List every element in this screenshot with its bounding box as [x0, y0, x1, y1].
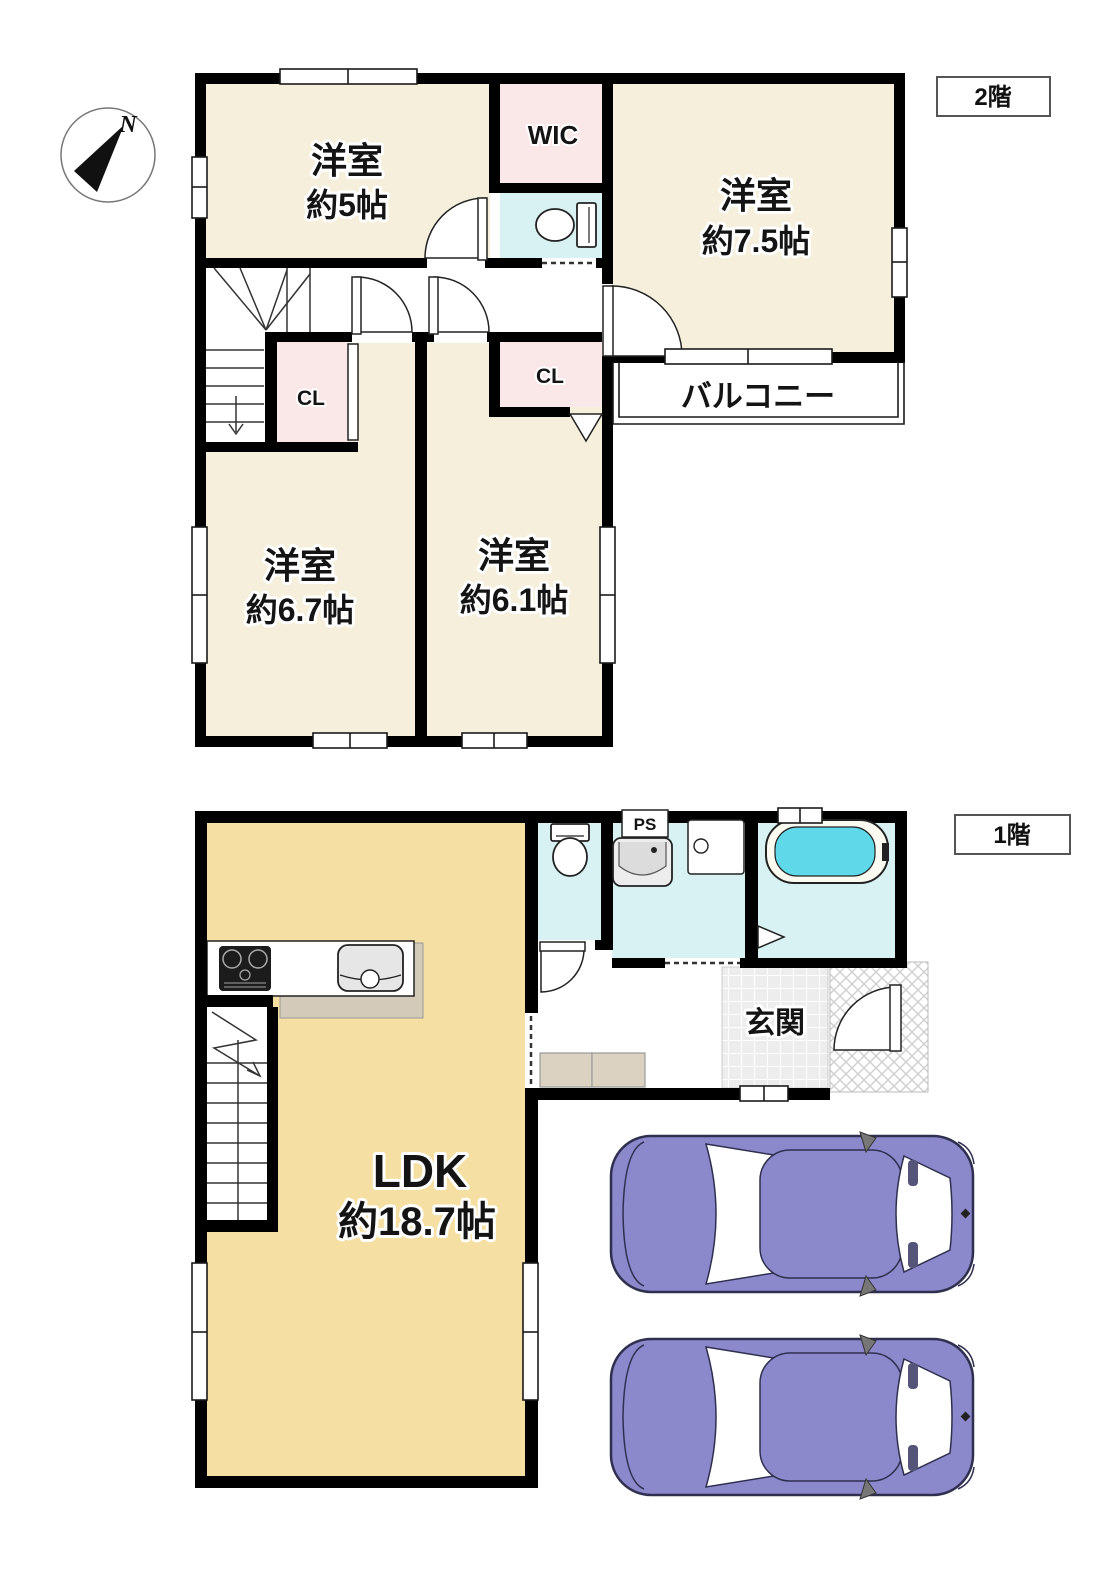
bathtub-icon: [766, 820, 889, 883]
shoe-cabinet: [540, 1053, 645, 1087]
stairs-2f-floor: [205, 268, 265, 443]
bedroom-7-5-label: 洋室: [720, 175, 792, 216]
closet-left-label: CL: [297, 387, 325, 410]
toilet-1f-fixture: [551, 824, 589, 876]
bedroom-6-1-label: 洋室: [478, 535, 550, 576]
bedroom-6-1-size: 約6.1帖: [460, 582, 569, 618]
closet-right-label: CL: [536, 365, 564, 388]
ldk-label: LDK: [373, 1145, 468, 1197]
floor-tag-1f-label: 1階: [993, 822, 1030, 849]
pipe-space: PS: [622, 810, 668, 837]
floor-2-plan: 洋室 約5帖 洋室 約7.5帖 洋室 約6.7帖 洋室 約6.1帖 WIC CL…: [192, 69, 907, 748]
car-2: [611, 1335, 974, 1499]
floor-tag-2f-label: 2階: [974, 84, 1011, 111]
compass-north-label: N: [118, 112, 138, 138]
car-1: [611, 1132, 974, 1296]
entrance-label: 玄関: [745, 1006, 805, 1040]
stove-icon: [219, 946, 271, 991]
compass-needle-icon: [74, 125, 124, 192]
balcony-label: バルコニー: [681, 379, 835, 414]
bedroom-6-7-size: 約6.7帖: [246, 592, 355, 628]
bedroom-5-size: 約5帖: [306, 187, 388, 223]
floorplan-page: 洋室 約5帖 洋室 約7.5帖 洋室 約6.7帖 洋室 約6.1帖 WIC CL…: [0, 0, 1118, 1570]
bedroom-6-7-label: 洋室: [264, 545, 336, 586]
ldk-size: 約18.7帖: [338, 1200, 496, 1244]
ps-label: PS: [634, 815, 657, 834]
washing-machine-pan-icon: [688, 820, 744, 874]
washbasin-icon: [613, 838, 672, 886]
floor-tag-1f: 1階: [955, 815, 1070, 854]
wic-label: WIC: [528, 120, 579, 150]
floorplan-canvas: 洋室 約5帖 洋室 約7.5帖 洋室 約6.7帖 洋室 約6.1帖 WIC CL…: [0, 0, 1118, 1570]
compass: N: [61, 108, 155, 202]
bedroom-5-label: 洋室: [311, 140, 383, 181]
sink-icon: [338, 945, 403, 991]
bedroom-7-5-size: 約7.5帖: [702, 223, 811, 259]
stairs-1f-floor: [207, 1007, 267, 1220]
floor-tag-2f: 2階: [937, 77, 1050, 116]
